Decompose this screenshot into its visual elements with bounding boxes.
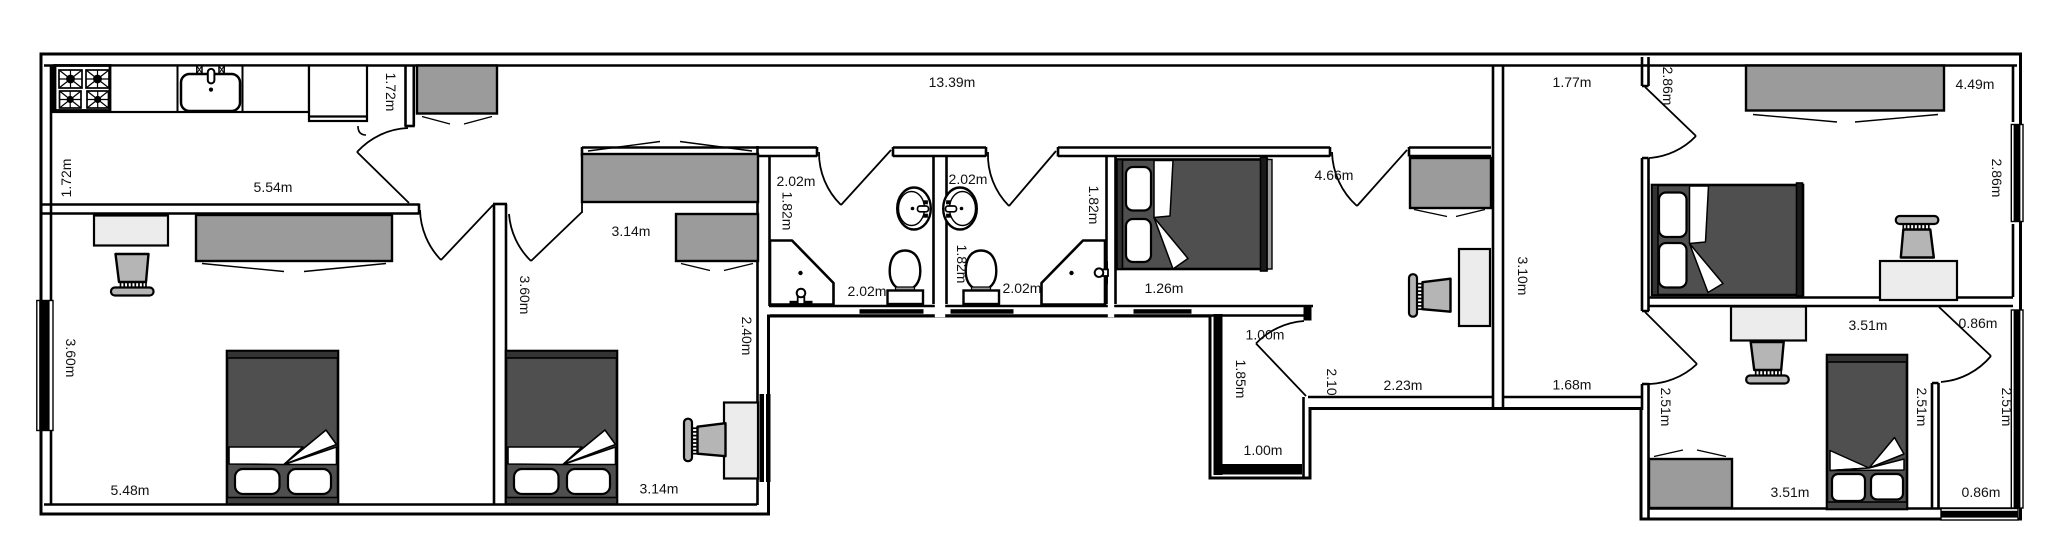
svg-text:2.02m: 2.02m — [949, 171, 988, 187]
svg-text:1.85m: 1.85m — [1233, 360, 1249, 399]
svg-text:2.23m: 2.23m — [1384, 377, 1423, 393]
svg-text:2.02m: 2.02m — [777, 173, 816, 189]
svg-text:4.66m: 4.66m — [1315, 167, 1354, 183]
svg-text:4.49m: 4.49m — [1956, 76, 1995, 92]
svg-text:1.77m: 1.77m — [1553, 74, 1592, 90]
svg-text:3.14m: 3.14m — [640, 481, 679, 497]
svg-text:1.82m: 1.82m — [954, 245, 970, 284]
svg-text:3.51m: 3.51m — [1849, 317, 1888, 333]
svg-text:2.02m: 2.02m — [848, 283, 887, 299]
svg-text:3.14m: 3.14m — [612, 223, 651, 239]
svg-text:2.51m: 2.51m — [1914, 388, 1930, 427]
svg-text:1.82m: 1.82m — [780, 192, 796, 231]
svg-text:2.40m: 2.40m — [739, 317, 755, 356]
svg-text:3.60m: 3.60m — [517, 276, 533, 315]
svg-text:3.10m: 3.10m — [1515, 257, 1531, 296]
svg-text:1.82m: 1.82m — [1086, 186, 1102, 225]
svg-text:3.51m: 3.51m — [1771, 484, 1810, 500]
svg-text:1.00m: 1.00m — [1246, 327, 1285, 343]
svg-text:13.39m: 13.39m — [929, 74, 976, 90]
svg-text:2.86m: 2.86m — [1660, 67, 1676, 106]
svg-text:5.48m: 5.48m — [111, 482, 150, 498]
svg-text:2.10: 2.10 — [1324, 368, 1340, 395]
svg-text:2.02m: 2.02m — [1003, 280, 1042, 296]
svg-text:3.60m: 3.60m — [63, 339, 79, 378]
svg-text:5.54m: 5.54m — [254, 179, 293, 195]
svg-text:1.72m: 1.72m — [383, 73, 399, 112]
svg-text:2.51m: 2.51m — [1658, 388, 1674, 427]
svg-text:1.68m: 1.68m — [1553, 377, 1592, 393]
svg-text:1.00m: 1.00m — [1244, 442, 1283, 458]
svg-text:1.26m: 1.26m — [1145, 280, 1184, 296]
svg-text:2.51m: 2.51m — [1999, 388, 2015, 427]
svg-text:2.86m: 2.86m — [1989, 159, 2005, 198]
svg-text:1.72m: 1.72m — [58, 159, 74, 198]
svg-text:0.86m: 0.86m — [1959, 315, 1998, 331]
svg-text:0.86m: 0.86m — [1962, 484, 2001, 500]
